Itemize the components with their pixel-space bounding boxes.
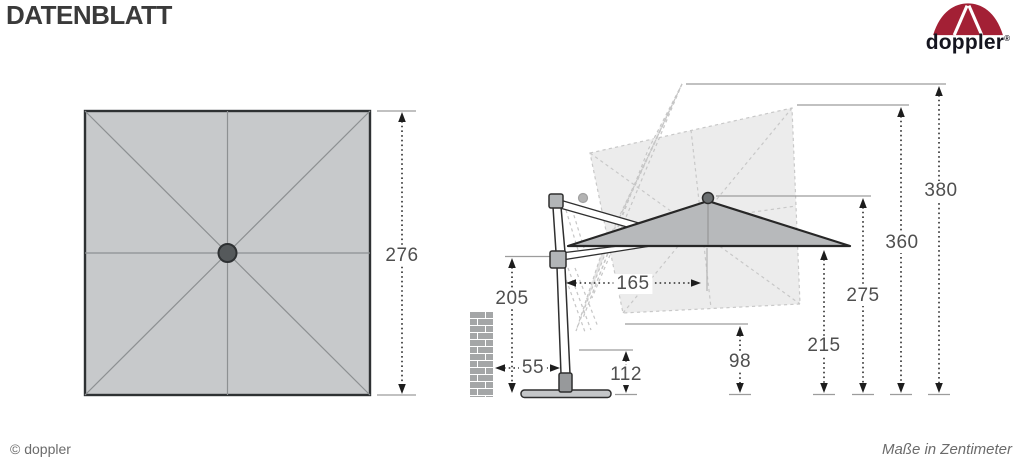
- canopy-knob: [703, 193, 714, 204]
- wall: [470, 312, 493, 397]
- datasheet-page: DATENBLATT doppler®: [0, 0, 1020, 462]
- dim-label-275: 275: [843, 286, 882, 306]
- dim-line-380: [935, 86, 943, 393]
- dim-label-165: 165: [613, 274, 652, 294]
- mast-sleeve: [550, 251, 566, 268]
- dim-label-276: 276: [382, 246, 421, 266]
- diagram-canvas: [0, 0, 1020, 462]
- mast-cap: [549, 194, 563, 208]
- top-view-hub: [219, 244, 237, 262]
- dim-label-205: 205: [492, 289, 531, 309]
- top-view-canopy: [85, 111, 370, 395]
- dim-label-98: 98: [726, 352, 754, 372]
- dim-label-112: 112: [607, 365, 645, 385]
- footer-units-note: Maße in Zentimeter: [882, 441, 1012, 458]
- dim-label-360: 360: [882, 233, 921, 253]
- dim-label-215: 215: [804, 336, 843, 356]
- footer-copyright: © doppler: [10, 441, 71, 457]
- dim-label-380: 380: [921, 181, 960, 201]
- dim-line-215: [820, 250, 828, 393]
- base-sleeve: [559, 373, 572, 392]
- mast-upper: [553, 207, 565, 252]
- dim-label-55: 55: [519, 358, 547, 378]
- dim-line-205: [508, 258, 516, 393]
